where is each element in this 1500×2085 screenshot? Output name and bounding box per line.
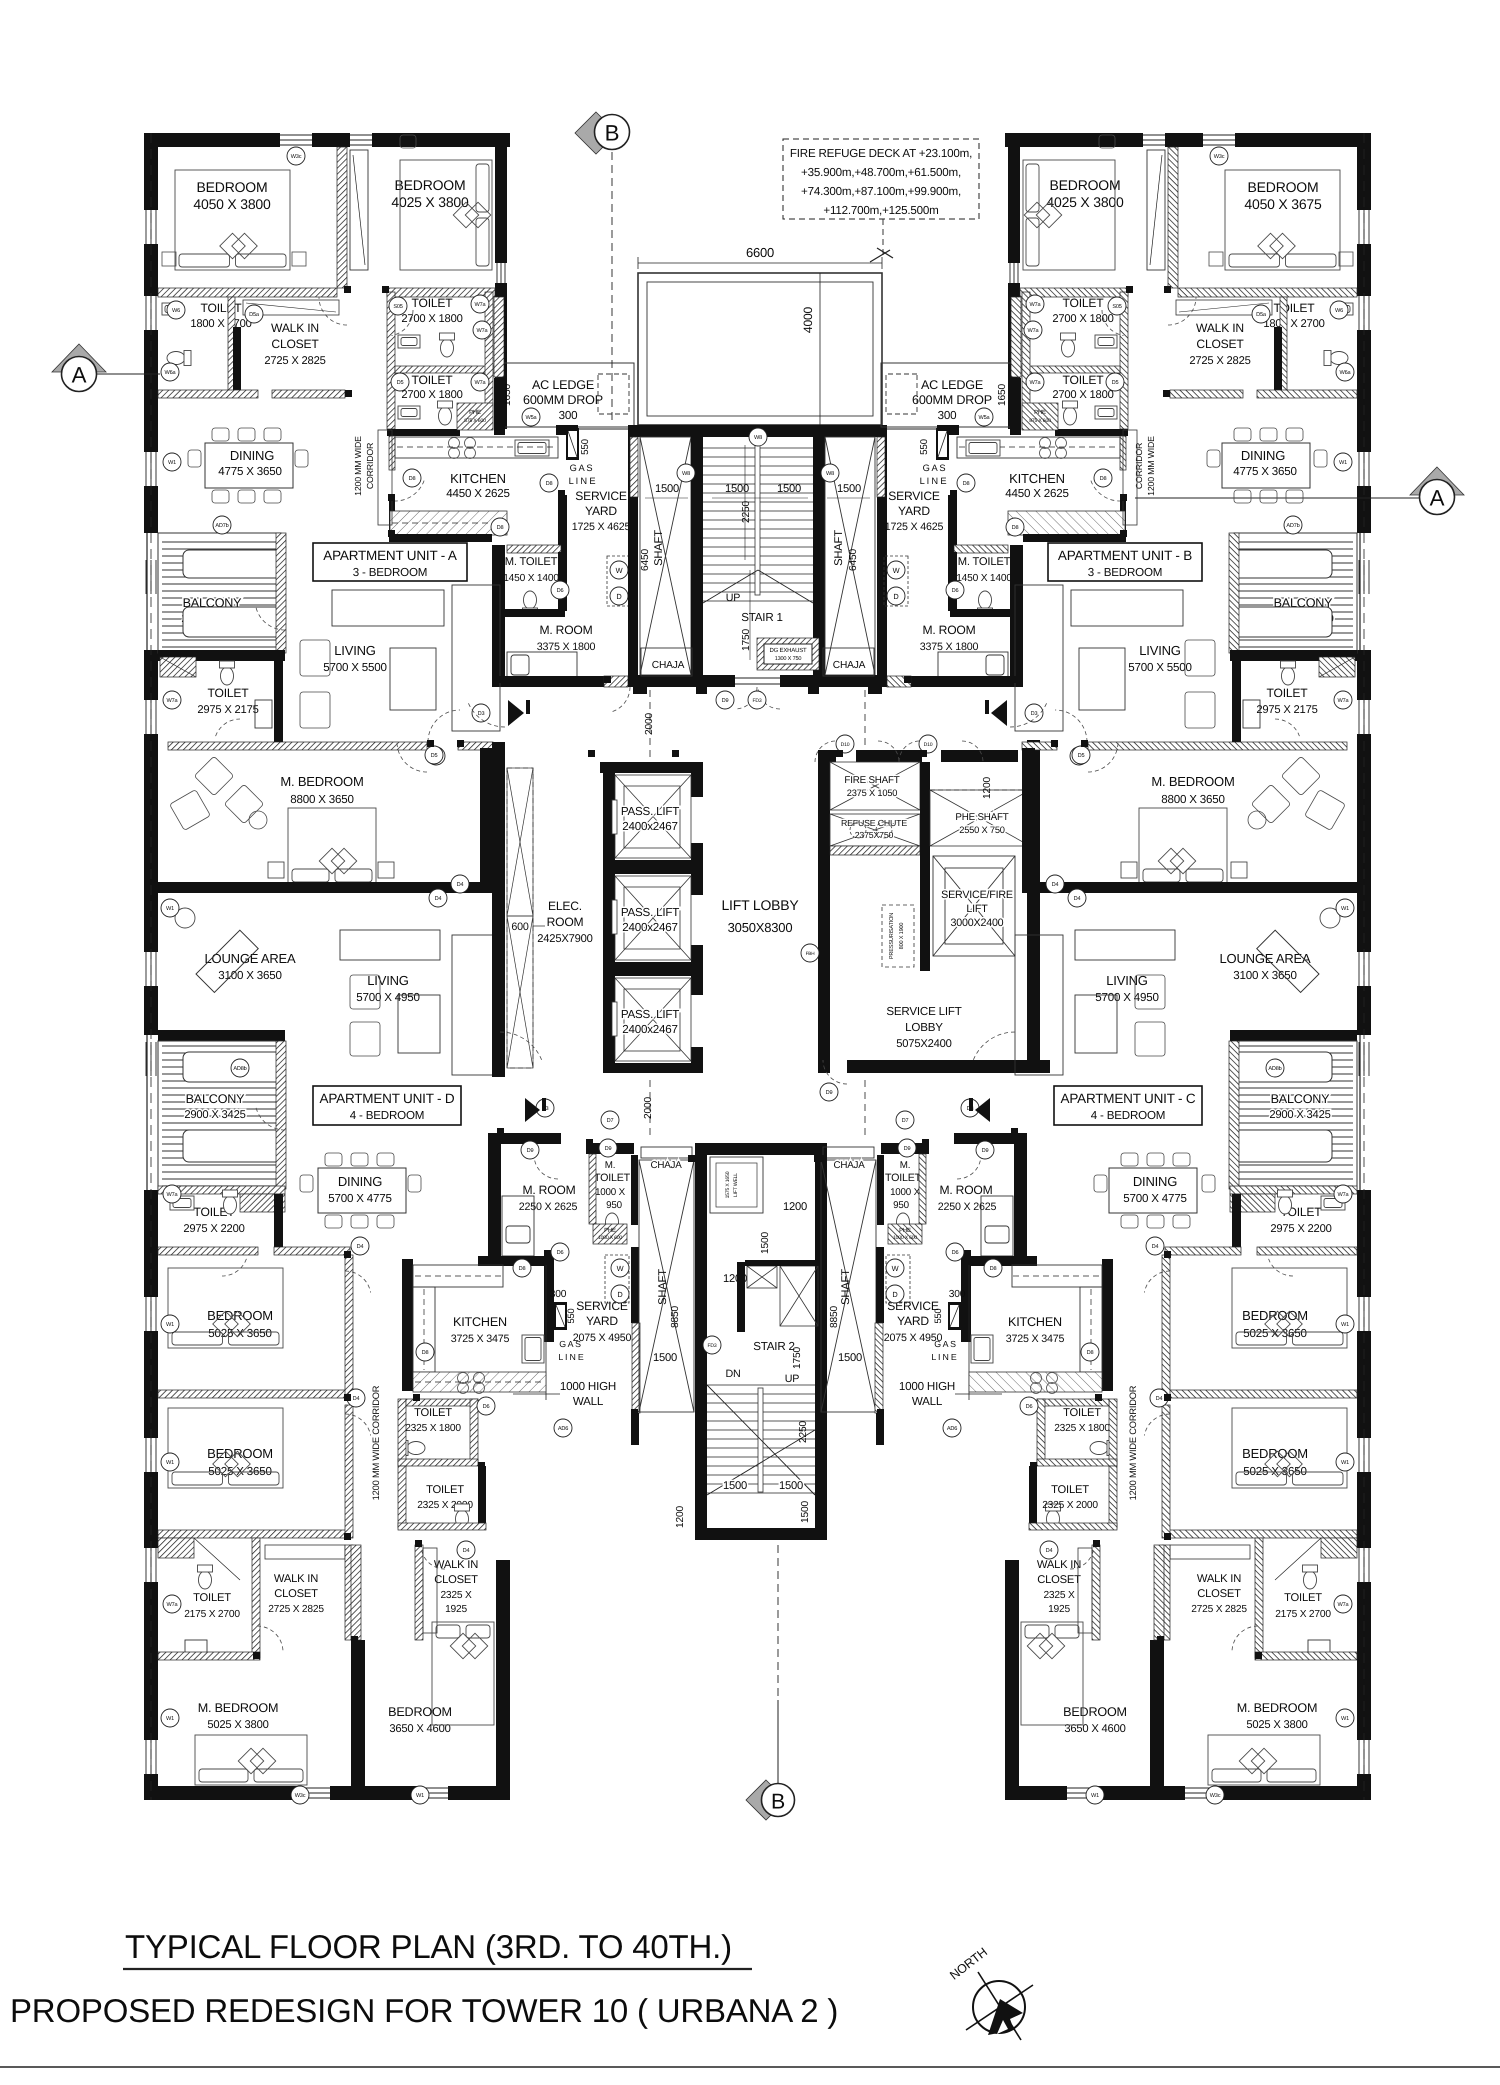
svg-text:2700 X 1800: 2700 X 1800: [1052, 313, 1113, 325]
svg-text:W8: W8: [826, 471, 834, 477]
svg-text:W1: W1: [1341, 1460, 1349, 1466]
svg-text:CHAJA: CHAJA: [650, 1160, 682, 1171]
svg-text:CLOSET: CLOSET: [1197, 1588, 1241, 1600]
svg-text:PASS. LIFT: PASS. LIFT: [621, 805, 679, 818]
svg-text:2325 X: 2325 X: [1043, 1590, 1074, 1601]
svg-text:D4: D4: [353, 1396, 360, 1402]
svg-text:L I N E: L I N E: [931, 1352, 956, 1362]
svg-text:D5a: D5a: [249, 312, 260, 318]
svg-text:UP: UP: [785, 1373, 800, 1385]
svg-text:PHE SHAFT: PHE SHAFT: [955, 812, 1008, 823]
svg-text:D5a: D5a: [1256, 312, 1267, 318]
svg-text:BEDROOM: BEDROOM: [1063, 1705, 1127, 1719]
svg-text:PRESSURISATION: PRESSURISATION: [889, 913, 895, 959]
svg-text:1500: 1500: [725, 483, 749, 495]
svg-text:600: 600: [511, 921, 528, 933]
svg-text:W7a: W7a: [1338, 698, 1350, 704]
svg-text:APARTMENT UNIT - B: APARTMENT UNIT - B: [1058, 548, 1192, 563]
svg-text:1725 X 4625: 1725 X 4625: [572, 521, 631, 533]
svg-text:AD7b: AD7b: [1286, 522, 1299, 529]
svg-text:CLOSET: CLOSET: [434, 1574, 478, 1586]
svg-text:PROPOSED REDESIGN FOR TOWER 10: PROPOSED REDESIGN FOR TOWER 10 ( URBANA …: [10, 1992, 838, 2029]
svg-text:W7a: W7a: [1030, 380, 1042, 386]
svg-text:6450: 6450: [640, 549, 651, 571]
svg-text:W6: W6: [172, 308, 180, 314]
svg-text:CLOSET: CLOSET: [271, 337, 319, 351]
svg-text:W1: W1: [1341, 906, 1349, 912]
svg-text:1925: 1925: [1048, 1604, 1070, 1615]
svg-text:BEDROOM: BEDROOM: [1242, 1308, 1308, 1323]
svg-text:WALL: WALL: [912, 1395, 943, 1408]
svg-text:W1: W1: [166, 1460, 174, 1466]
svg-text:D8: D8: [963, 481, 970, 487]
svg-text:KITCHEN: KITCHEN: [1009, 471, 1065, 486]
svg-text:WALK IN: WALK IN: [1037, 1559, 1081, 1571]
svg-text:D3: D3: [1031, 711, 1038, 717]
svg-text:1000 X 600: 1000 X 600: [598, 1235, 622, 1241]
svg-text:6600: 6600: [746, 245, 774, 260]
svg-text:AC LEDGE: AC LEDGE: [532, 378, 594, 392]
svg-text:D8: D8: [497, 525, 504, 531]
svg-text:W7a: W7a: [1338, 1602, 1350, 1608]
svg-text:G A S: G A S: [934, 1339, 956, 1349]
svg-text:5700 X 4950: 5700 X 4950: [1095, 991, 1159, 1004]
svg-text:YARD: YARD: [585, 504, 617, 518]
svg-text:TOILET: TOILET: [414, 1407, 452, 1419]
svg-text:YARD: YARD: [897, 1314, 929, 1328]
svg-text:B: B: [605, 121, 620, 146]
svg-text:3050X8300: 3050X8300: [728, 920, 793, 935]
svg-text:W1: W1: [166, 1322, 174, 1328]
svg-text:W3c: W3c: [1210, 1793, 1221, 1799]
svg-text:A: A: [72, 363, 87, 388]
svg-text:2425X7900: 2425X7900: [537, 933, 592, 945]
svg-text:M. BEDROOM: M. BEDROOM: [198, 1701, 279, 1715]
svg-text:1575 X 1650: 1575 X 1650: [725, 1171, 731, 1198]
svg-text:PHE: PHE: [1034, 409, 1046, 416]
svg-text:D10: D10: [924, 742, 933, 748]
svg-text:2975 X 2200: 2975 X 2200: [183, 1223, 244, 1235]
svg-text:W7a: W7a: [477, 328, 489, 334]
svg-text:800 X 1900: 800 X 1900: [899, 923, 905, 950]
svg-text:L I N E: L I N E: [920, 476, 947, 486]
svg-text:BEDROOM: BEDROOM: [197, 179, 268, 195]
svg-text:PHE: PHE: [899, 1227, 911, 1234]
svg-text:550: 550: [933, 1309, 943, 1324]
svg-text:W7a: W7a: [475, 380, 487, 386]
svg-text:TOILET: TOILET: [193, 1592, 231, 1604]
svg-text:WALK IN: WALK IN: [434, 1559, 478, 1571]
svg-text:4025 X 3800: 4025 X 3800: [1046, 194, 1124, 210]
svg-text:TOILET: TOILET: [594, 1172, 631, 1184]
svg-text:4450 X 2625: 4450 X 2625: [446, 487, 510, 500]
svg-text:D: D: [893, 592, 898, 601]
svg-text:W1: W1: [1341, 1716, 1349, 1722]
svg-text:DN: DN: [725, 1368, 740, 1380]
svg-text:1450 X 1400: 1450 X 1400: [503, 573, 559, 584]
svg-text:M. BEDROOM: M. BEDROOM: [1151, 774, 1234, 789]
svg-text:5075X2400: 5075X2400: [896, 1038, 951, 1050]
svg-text:BEDROOM: BEDROOM: [388, 1705, 452, 1719]
svg-text:TOILET: TOILET: [412, 373, 454, 387]
svg-text:1500: 1500: [655, 483, 679, 495]
svg-text:4050 X 3675: 4050 X 3675: [1244, 196, 1322, 212]
svg-text:W3c: W3c: [291, 154, 302, 160]
svg-text:2325 X 2000: 2325 X 2000: [1042, 1500, 1098, 1511]
svg-text:FIRE REFUGE DECK AT +23.100m: FIRE REFUGE DECK AT +23.100m,: [790, 147, 972, 160]
svg-text:D8: D8: [1087, 1350, 1094, 1356]
svg-text:D7: D7: [902, 1118, 909, 1124]
svg-text:W5a: W5a: [526, 415, 538, 421]
svg-text:D6: D6: [952, 588, 959, 594]
svg-text:D4: D4: [1074, 896, 1081, 902]
svg-text:PASS. LIFT: PASS. LIFT: [621, 906, 679, 919]
svg-text:2725 X 2825: 2725 X 2825: [264, 355, 325, 367]
svg-text:FD3: FD3: [752, 698, 761, 704]
svg-text:1450 X 1400: 1450 X 1400: [956, 573, 1012, 584]
svg-text:2700 X 1800: 2700 X 1800: [401, 313, 462, 325]
svg-text:D8: D8: [546, 481, 553, 487]
svg-text:300: 300: [938, 409, 957, 422]
svg-text:PHE: PHE: [604, 1227, 616, 1234]
svg-text:ELEC.: ELEC.: [548, 899, 582, 913]
svg-text:CHAJA: CHAJA: [833, 660, 866, 671]
svg-text:M. ROOM: M. ROOM: [539, 623, 592, 637]
svg-text:G A S: G A S: [570, 463, 593, 473]
svg-text:D8: D8: [409, 476, 416, 482]
svg-text:2900 X 3425: 2900 X 3425: [184, 1109, 245, 1121]
svg-text:D9: D9: [826, 1090, 833, 1096]
svg-text:5700 X 4950: 5700 X 4950: [356, 991, 420, 1004]
svg-text:+74.300m,+87.100m,+99.900m,: +74.300m,+87.100m,+99.900m,: [801, 185, 961, 198]
svg-text:1500: 1500: [800, 1501, 811, 1523]
svg-text:SHAFT: SHAFT: [653, 530, 665, 566]
svg-text:W1: W1: [166, 906, 174, 912]
svg-text:AD6: AD6: [947, 1426, 957, 1432]
svg-text:1000 HIGH: 1000 HIGH: [560, 1380, 616, 1393]
svg-text:M.: M.: [900, 1160, 910, 1171]
svg-text:TOILET: TOILET: [201, 301, 243, 315]
svg-text:WALK IN: WALK IN: [274, 1573, 318, 1585]
svg-text:SHAFT: SHAFT: [657, 1269, 669, 1305]
svg-text:2975 X 2200: 2975 X 2200: [1270, 1223, 1331, 1235]
svg-text:DINING: DINING: [1133, 1174, 1177, 1189]
svg-text:2325 X: 2325 X: [440, 1590, 471, 1601]
svg-text:4775 X 3650: 4775 X 3650: [1233, 465, 1297, 478]
svg-text:1800 X 2700: 1800 X 2700: [1263, 318, 1324, 330]
svg-text:1200: 1200: [982, 777, 993, 799]
svg-text:CORRIDOR: CORRIDOR: [1134, 443, 1144, 489]
svg-text:AC LEDGE: AC LEDGE: [921, 378, 983, 392]
svg-text:1750: 1750: [741, 629, 752, 651]
svg-text:REFUSE CHUTE: REFUSE CHUTE: [841, 818, 907, 828]
svg-text:BEDROOM: BEDROOM: [1050, 177, 1121, 193]
svg-text:2400x2467: 2400x2467: [622, 1023, 678, 1036]
svg-text:550: 550: [919, 438, 930, 454]
svg-text:W7a: W7a: [475, 302, 487, 308]
svg-text:D8: D8: [422, 1350, 429, 1356]
svg-text:D4: D4: [357, 1244, 364, 1250]
svg-text:CLOSET: CLOSET: [274, 1588, 318, 1600]
svg-text:KITCHEN: KITCHEN: [450, 471, 506, 486]
svg-text:3725 X 3475: 3725 X 3475: [1006, 1333, 1065, 1345]
svg-text:W1: W1: [168, 460, 176, 466]
svg-text:3100 X 3650: 3100 X 3650: [1233, 969, 1297, 982]
svg-text:2375 X 1050: 2375 X 1050: [847, 788, 898, 798]
svg-text:D9: D9: [904, 1146, 911, 1152]
svg-text:TOILET: TOILET: [1063, 373, 1105, 387]
svg-text:CLOSET: CLOSET: [1037, 1574, 1081, 1586]
svg-text:D9: D9: [982, 1148, 989, 1154]
svg-text:3 - BEDROOM: 3 - BEDROOM: [353, 566, 427, 579]
svg-text:G A S: G A S: [559, 1339, 581, 1349]
svg-text:M.: M.: [605, 1160, 615, 1171]
svg-text:KITCHEN: KITCHEN: [1008, 1315, 1062, 1329]
svg-text:W5a: W5a: [979, 415, 991, 421]
svg-text:D4: D4: [1156, 1396, 1163, 1402]
svg-text:LOBBY: LOBBY: [905, 1021, 943, 1034]
svg-text:CORRIDOR: CORRIDOR: [365, 443, 375, 489]
svg-text:TOILET: TOILET: [1063, 1407, 1101, 1419]
svg-text:BEDROOM: BEDROOM: [1248, 179, 1319, 195]
svg-text:BEDROOM: BEDROOM: [395, 177, 466, 193]
svg-text:+112.700m,+125.500m: +112.700m,+125.500m: [823, 204, 938, 217]
svg-text:W3c: W3c: [295, 1793, 306, 1799]
svg-text:APARTMENT UNIT - A: APARTMENT UNIT - A: [323, 548, 457, 563]
svg-text:2250: 2250: [741, 501, 752, 523]
svg-text:APARTMENT UNIT - D: APARTMENT UNIT - D: [320, 1091, 455, 1106]
svg-text:M. TOILET: M. TOILET: [505, 556, 558, 568]
svg-text:6450: 6450: [848, 549, 859, 571]
svg-text:D6: D6: [952, 1250, 959, 1256]
svg-text:W: W: [892, 1264, 899, 1273]
svg-text:SERVICE/FIRE: SERVICE/FIRE: [941, 889, 1013, 901]
svg-text:5700 X 5500: 5700 X 5500: [1128, 661, 1192, 674]
svg-text:2250 X 2625: 2250 X 2625: [938, 1201, 997, 1213]
svg-text:1800 X 2700: 1800 X 2700: [190, 318, 251, 330]
svg-text:2250: 2250: [798, 1421, 809, 1443]
svg-text:3 - BEDROOM: 3 - BEDROOM: [1088, 566, 1162, 579]
svg-text:2700 X 1800: 2700 X 1800: [1052, 389, 1113, 401]
svg-text:W1: W1: [1339, 460, 1347, 466]
svg-text:DINING: DINING: [230, 448, 274, 463]
svg-text:FBH: FBH: [806, 951, 815, 956]
svg-text:1200 MM WIDE: 1200 MM WIDE: [353, 436, 363, 496]
svg-text:2400x2467: 2400x2467: [622, 921, 678, 934]
svg-text:B: B: [771, 1789, 785, 1813]
svg-text:D9: D9: [722, 698, 729, 704]
svg-text:S05: S05: [1112, 304, 1121, 310]
svg-text:2250 X 2625: 2250 X 2625: [519, 1201, 578, 1213]
svg-text:TOILET: TOILET: [1051, 1484, 1089, 1496]
svg-text:D9: D9: [527, 1148, 534, 1154]
svg-text:W7a: W7a: [167, 1192, 179, 1198]
svg-text:LIFT: LIFT: [966, 903, 988, 915]
svg-text:4050 X 3800: 4050 X 3800: [193, 196, 271, 212]
svg-text:D5: D5: [1112, 380, 1119, 386]
svg-text:AD6: AD6: [558, 1426, 568, 1432]
svg-text:AD8b: AD8b: [233, 1065, 246, 1072]
svg-text:1500: 1500: [723, 1480, 747, 1492]
svg-text:2725 X 2825: 2725 X 2825: [1191, 1604, 1247, 1615]
svg-text:D10: D10: [841, 742, 850, 748]
svg-text:W7a: W7a: [167, 698, 179, 704]
svg-text:D5: D5: [431, 753, 438, 759]
svg-text:SERVICE LIFT: SERVICE LIFT: [886, 1005, 961, 1018]
svg-text:PHE: PHE: [469, 409, 481, 416]
svg-text:W6a: W6a: [1340, 370, 1352, 376]
svg-text:M. BEDROOM: M. BEDROOM: [280, 774, 363, 789]
svg-text:STAIR 2: STAIR 2: [753, 1340, 795, 1353]
svg-text:1000 X 600: 1000 X 600: [893, 1235, 917, 1241]
svg-text:SERVICE: SERVICE: [575, 489, 627, 503]
svg-text:BALCONY: BALCONY: [1271, 1092, 1331, 1106]
svg-text:TYPICAL FLOOR PLAN (3RD. TO 40: TYPICAL FLOOR PLAN (3RD. TO 40TH.): [125, 1928, 732, 1965]
svg-text:TOILET: TOILET: [1284, 1592, 1322, 1604]
svg-text:W6: W6: [1335, 308, 1343, 314]
svg-text:D6: D6: [1026, 1404, 1033, 1410]
svg-text:W8: W8: [754, 435, 762, 441]
svg-text:950: 950: [893, 1200, 909, 1211]
svg-text:D4: D4: [1046, 1548, 1053, 1554]
svg-text:8850: 8850: [829, 1306, 840, 1328]
svg-text:M. ROOM: M. ROOM: [939, 1183, 992, 1197]
svg-text:W: W: [616, 566, 623, 575]
svg-text:3725 X 3475: 3725 X 3475: [451, 1333, 510, 1345]
svg-text:D6: D6: [483, 1404, 490, 1410]
svg-text:5025 X 3800: 5025 X 3800: [207, 1719, 268, 1731]
svg-text:1000 X: 1000 X: [890, 1187, 921, 1198]
svg-text:LIVING: LIVING: [334, 643, 376, 658]
svg-text:1725 X 4625: 1725 X 4625: [885, 521, 944, 533]
svg-text:2325 X 1800: 2325 X 1800: [405, 1423, 461, 1434]
svg-text:W1: W1: [166, 1716, 174, 1722]
svg-text:875 X 600: 875 X 600: [464, 418, 486, 424]
svg-text:D: D: [617, 1290, 622, 1299]
svg-text:600MM DROP: 600MM DROP: [912, 393, 992, 407]
svg-text:LIFT WELL: LIFT WELL: [733, 1173, 739, 1197]
svg-text:1500: 1500: [760, 1232, 771, 1254]
svg-text:LOUNGE AREA: LOUNGE AREA: [1220, 951, 1312, 966]
svg-text:600MM DROP: 600MM DROP: [523, 393, 603, 407]
svg-text:5700 X 4775: 5700 X 4775: [1123, 1192, 1187, 1205]
svg-text:1925: 1925: [445, 1604, 467, 1615]
svg-text:AD7b: AD7b: [215, 522, 228, 529]
svg-text:950: 950: [606, 1200, 622, 1211]
svg-text:LIVING: LIVING: [1139, 643, 1181, 658]
svg-text:UP: UP: [726, 592, 741, 604]
svg-text:AD8b: AD8b: [1268, 1065, 1281, 1072]
svg-text:WALK IN: WALK IN: [271, 321, 319, 335]
svg-text:FIRE SHAFT: FIRE SHAFT: [844, 775, 899, 786]
svg-text:SHAFT: SHAFT: [833, 530, 845, 566]
svg-text:D3: D3: [478, 711, 485, 717]
svg-text:5025 X 3650: 5025 X 3650: [1243, 1465, 1307, 1478]
svg-text:DINING: DINING: [338, 1174, 382, 1189]
svg-text:WALK IN: WALK IN: [1196, 321, 1244, 335]
svg-text:M. TOILET: M. TOILET: [958, 556, 1011, 568]
svg-text:D: D: [892, 1290, 897, 1299]
svg-text:D: D: [616, 592, 621, 601]
svg-text:1200 MM WIDE CORRIDOR: 1200 MM WIDE CORRIDOR: [1128, 1385, 1138, 1500]
svg-text:LIFT LOBBY: LIFT LOBBY: [721, 897, 799, 913]
svg-text:W: W: [893, 566, 900, 575]
svg-text:W7a: W7a: [1030, 302, 1042, 308]
svg-text:5700 X 4775: 5700 X 4775: [328, 1192, 392, 1205]
svg-text:2400x2467: 2400x2467: [622, 820, 678, 833]
svg-text:1200 MM WIDE CORRIDOR: 1200 MM WIDE CORRIDOR: [371, 1385, 381, 1500]
svg-text:ROOM: ROOM: [547, 915, 584, 929]
svg-text:D4: D4: [457, 882, 464, 888]
svg-text:2975 X 2175: 2975 X 2175: [197, 704, 258, 716]
svg-text:2000: 2000: [643, 1097, 654, 1119]
svg-text:M. ROOM: M. ROOM: [522, 1183, 575, 1197]
svg-text:1500: 1500: [653, 1352, 677, 1364]
svg-text:1300 X 750: 1300 X 750: [775, 656, 802, 662]
svg-text:1500: 1500: [837, 483, 861, 495]
svg-text:D8: D8: [990, 1266, 997, 1272]
svg-text:4000: 4000: [801, 306, 815, 333]
svg-text:2550 X 750: 2550 X 750: [959, 825, 1005, 835]
svg-text:W6a: W6a: [165, 370, 177, 376]
svg-text:D7: D7: [607, 1118, 614, 1124]
svg-text:DG EXHAUST: DG EXHAUST: [769, 647, 807, 654]
svg-text:BEDROOM: BEDROOM: [207, 1308, 273, 1323]
svg-text:CLOSET: CLOSET: [1196, 337, 1244, 351]
svg-text:3375 X 1800: 3375 X 1800: [920, 641, 979, 653]
svg-text:300: 300: [550, 1289, 567, 1300]
svg-text:D5: D5: [1078, 753, 1085, 759]
svg-text:5025 X 3800: 5025 X 3800: [1246, 1719, 1307, 1731]
svg-text:KITCHEN: KITCHEN: [453, 1315, 507, 1329]
svg-text:2175 X 2700: 2175 X 2700: [184, 1609, 240, 1620]
svg-text:W7a: W7a: [1028, 328, 1040, 334]
svg-text:D8: D8: [1012, 525, 1019, 531]
svg-text:L I N E: L I N E: [569, 476, 596, 486]
svg-text:8800 X 3650: 8800 X 3650: [290, 793, 354, 806]
svg-text:1500: 1500: [777, 483, 801, 495]
svg-text:S05: S05: [393, 304, 402, 310]
svg-text:TOILET: TOILET: [208, 686, 250, 700]
svg-text:D5: D5: [397, 380, 404, 386]
svg-text:STAIR 1: STAIR 1: [741, 611, 783, 624]
svg-text:1200 MM WIDE: 1200 MM WIDE: [1146, 436, 1156, 496]
svg-text:2375X750: 2375X750: [855, 830, 894, 840]
svg-text:L I N E: L I N E: [558, 1352, 583, 1362]
svg-text:W1: W1: [1341, 1322, 1349, 1328]
svg-text:FD3: FD3: [707, 1343, 716, 1349]
svg-text:2700 X 1800: 2700 X 1800: [401, 389, 462, 401]
svg-text:4025 X 3800: 4025 X 3800: [391, 194, 469, 210]
svg-text:TOILET: TOILET: [885, 1172, 922, 1184]
svg-text:YARD: YARD: [586, 1314, 618, 1328]
svg-text:TOILET: TOILET: [426, 1484, 464, 1496]
svg-text:G A S: G A S: [923, 463, 946, 473]
svg-text:DINING: DINING: [1241, 448, 1285, 463]
svg-text:D9: D9: [605, 1146, 612, 1152]
svg-text:1750: 1750: [792, 1347, 803, 1369]
svg-text:SHAFT: SHAFT: [840, 1269, 852, 1305]
svg-text:1500: 1500: [838, 1352, 862, 1364]
svg-text:M. BEDROOM: M. BEDROOM: [1237, 1701, 1318, 1715]
svg-text:2725 X 2825: 2725 X 2825: [268, 1604, 324, 1615]
svg-text:8850: 8850: [670, 1306, 681, 1328]
svg-text:4 - BEDROOM: 4 - BEDROOM: [350, 1109, 424, 1122]
svg-text:PASS. LIFT: PASS. LIFT: [621, 1008, 679, 1021]
svg-text:W8: W8: [682, 471, 690, 477]
svg-text:5025 X 3650: 5025 X 3650: [208, 1465, 272, 1478]
svg-text:APARTMENT UNIT - C: APARTMENT UNIT - C: [1061, 1091, 1196, 1106]
